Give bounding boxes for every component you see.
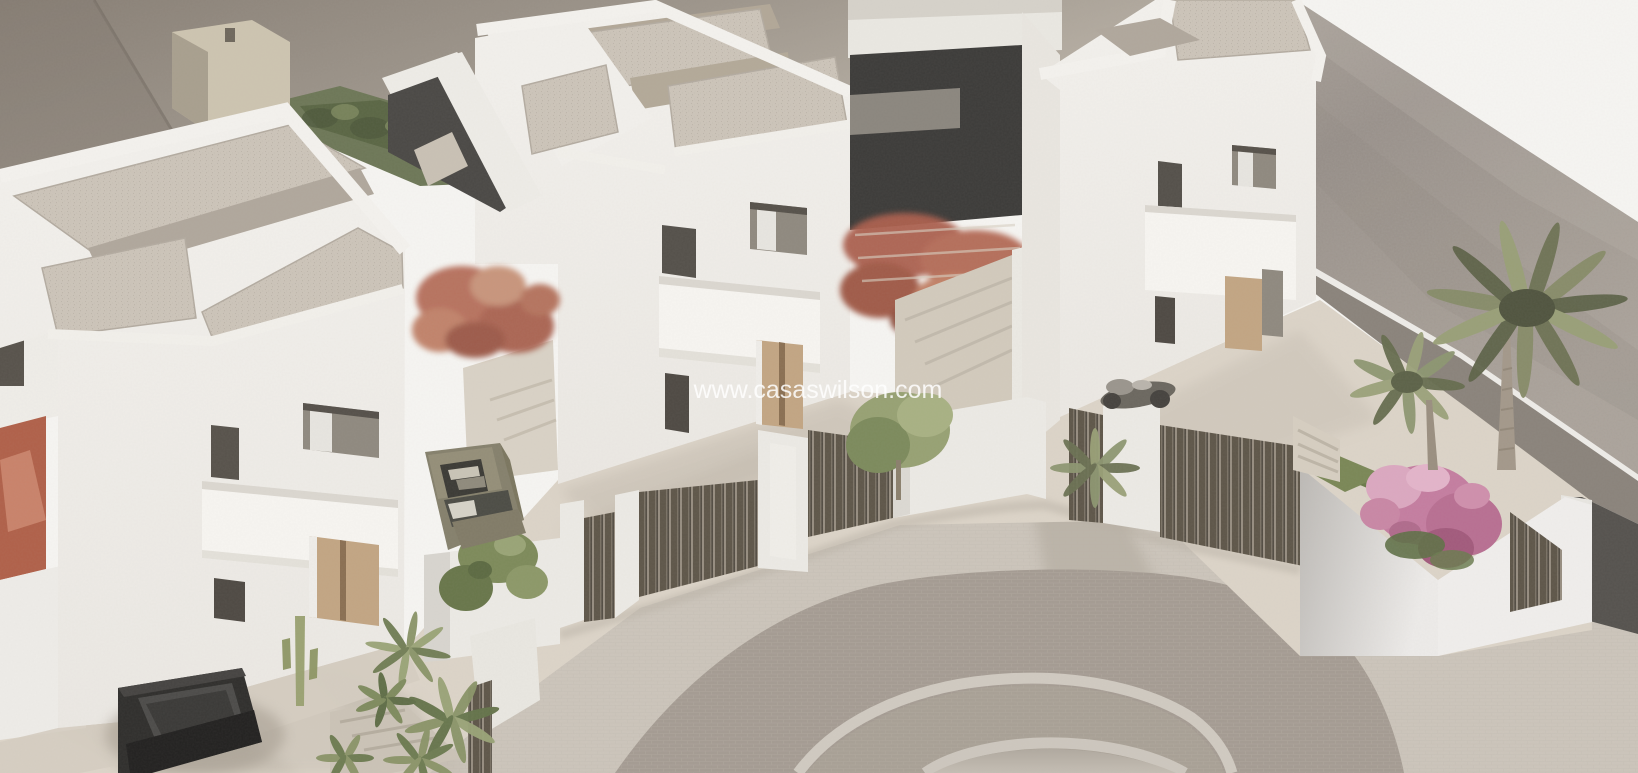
svg-text:www.casaswilson.com: www.casaswilson.com [693, 376, 943, 404]
